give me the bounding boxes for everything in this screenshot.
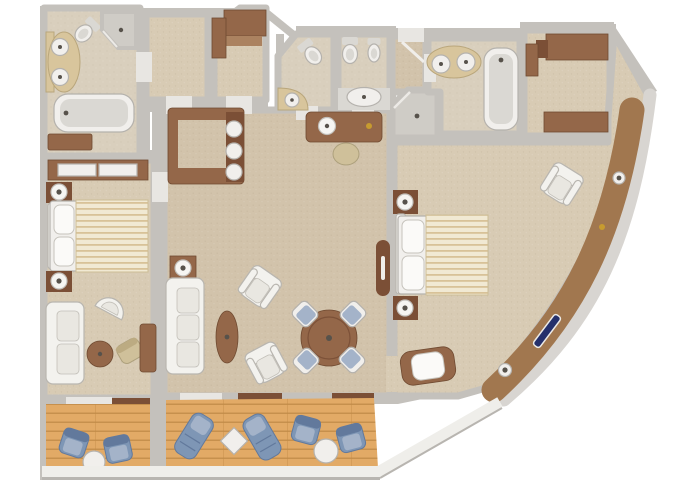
bathtub-basin: [60, 99, 128, 127]
round-deck-table: [314, 439, 338, 463]
pillow: [402, 220, 424, 253]
sofa-cushion: [177, 342, 199, 367]
stool: [333, 143, 359, 165]
bidet-icon: [368, 38, 381, 62]
balconies: [42, 398, 502, 480]
wardrobe-side-cabinet: [212, 18, 226, 58]
suite-entry-door: [398, 28, 424, 42]
living-sofa: [166, 278, 204, 374]
sink-drain: [464, 60, 468, 64]
side-cabinet: [526, 44, 538, 76]
bar-stool: [226, 121, 242, 137]
wardrobe-shelf: [224, 36, 262, 46]
wardrobe-top: [546, 34, 608, 60]
basin-drain: [290, 98, 294, 102]
bedside-lamp-icon: [397, 194, 413, 210]
table-centre: [326, 335, 332, 341]
table-centre: [98, 352, 102, 356]
bathtub-basin: [489, 54, 513, 124]
bar-stool: [226, 143, 242, 159]
deck-chair: [103, 434, 134, 465]
striped-duvet: [76, 200, 148, 272]
wardrobe-door: [99, 164, 137, 176]
sink-drain: [58, 45, 62, 49]
pillow: [54, 205, 74, 234]
wardrobe-door: [58, 164, 96, 176]
balcony-divider-wall: [150, 394, 166, 478]
porthole-glass: [502, 367, 507, 372]
railing-angled: [378, 402, 500, 472]
sink-drain: [439, 62, 443, 66]
wardrobe-bottom: [544, 112, 608, 132]
bedroom-sofa: [46, 302, 84, 384]
bath-storage-bench: [48, 134, 92, 150]
gold-fitting: [599, 224, 605, 230]
tub-faucet: [64, 111, 69, 116]
sofa-cushion: [177, 288, 199, 313]
wardrobe-room-a-floor: [146, 14, 208, 100]
second-bed: [396, 214, 488, 295]
table-lamp-icon: [175, 260, 191, 276]
corridor-floor: [392, 36, 426, 92]
sofa-cushion: [57, 344, 79, 374]
toilet-icon: [342, 37, 358, 64]
shower-drain: [415, 114, 420, 119]
shower-drain: [119, 28, 123, 32]
bedroom2-door: [386, 356, 398, 392]
sofa-cushion: [57, 311, 79, 341]
bar-stool: [226, 164, 242, 180]
sofa-cushion: [177, 315, 199, 340]
shower-room-floor: [392, 90, 438, 138]
cushioned-bench: [399, 345, 457, 386]
pillow: [54, 237, 74, 266]
sink-drain: [58, 75, 62, 79]
master-bed: [48, 200, 148, 272]
balcony-railing: [42, 466, 380, 478]
basin-drain: [325, 124, 329, 128]
gold-fitting: [366, 123, 372, 129]
master-bedroom-door: [152, 172, 168, 202]
pillow: [402, 256, 424, 290]
bedside-lamp-icon: [51, 184, 67, 200]
wardrobe-cabinet: [224, 10, 266, 36]
bar-inner-floor: [178, 120, 226, 168]
railing-edge: [42, 477, 380, 480]
porthole-glass: [617, 176, 622, 181]
bedside-lamp-icon: [51, 273, 67, 289]
bedside-lamp-icon: [397, 300, 413, 316]
striped-duvet: [426, 215, 488, 295]
table-centre: [225, 335, 230, 340]
floor-plan: [0, 0, 680, 486]
floor-plan-canvas: [0, 0, 680, 486]
master-bath-door: [136, 52, 152, 82]
console-tv: [381, 256, 385, 280]
basin-drain: [362, 95, 366, 99]
desk: [140, 324, 156, 372]
tub-faucet: [499, 58, 504, 63]
railing-angled-edge: [380, 408, 502, 478]
